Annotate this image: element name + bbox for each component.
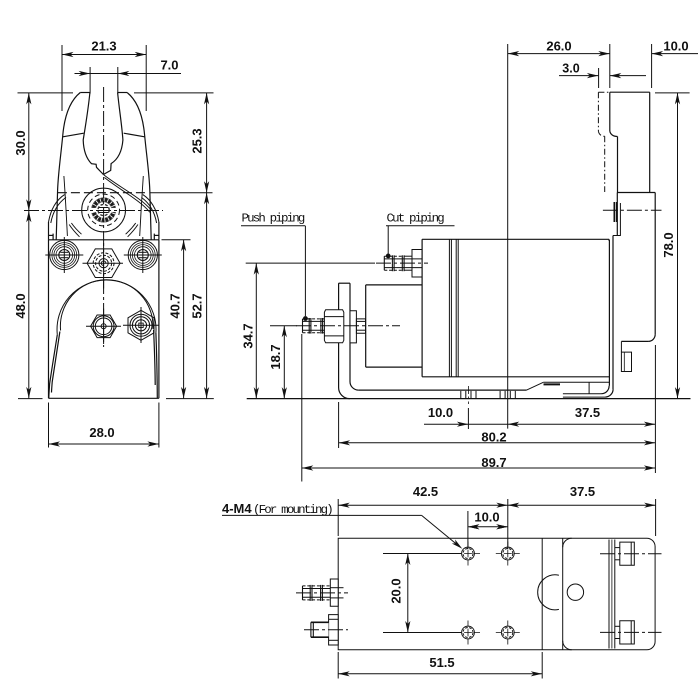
svg-text:7.0: 7.0: [160, 58, 178, 73]
svg-text:89.7: 89.7: [481, 455, 506, 470]
svg-text:4-M4: 4-M4: [222, 501, 252, 516]
svg-text:34.7: 34.7: [240, 323, 255, 348]
svg-text:40.7: 40.7: [167, 293, 182, 318]
svg-text:10.0: 10.0: [663, 39, 688, 54]
svg-text:42.5: 42.5: [413, 484, 438, 499]
svg-text:25.3: 25.3: [189, 128, 204, 153]
svg-text:10.0: 10.0: [428, 405, 453, 420]
svg-text:3.0: 3.0: [562, 62, 579, 76]
svg-text:Cut piping: Cut piping: [387, 212, 445, 226]
svg-text:26.0: 26.0: [546, 39, 571, 54]
svg-text:21.3: 21.3: [91, 39, 116, 54]
svg-text:48.0: 48.0: [13, 293, 28, 318]
svg-text:78.0: 78.0: [661, 232, 676, 257]
svg-text:10.0: 10.0: [474, 510, 499, 525]
svg-text:80.2: 80.2: [481, 430, 506, 445]
svg-text:Push piping: Push piping: [242, 212, 305, 226]
svg-text:52.7: 52.7: [189, 293, 204, 318]
svg-text:37.5: 37.5: [570, 484, 595, 499]
svg-text:18.7: 18.7: [268, 344, 283, 369]
svg-text:51.5: 51.5: [429, 655, 454, 670]
svg-text:37.5: 37.5: [575, 405, 600, 420]
svg-text:30.0: 30.0: [13, 130, 28, 155]
svg-text:28.0: 28.0: [89, 425, 114, 440]
svg-text:20.0: 20.0: [389, 578, 404, 603]
